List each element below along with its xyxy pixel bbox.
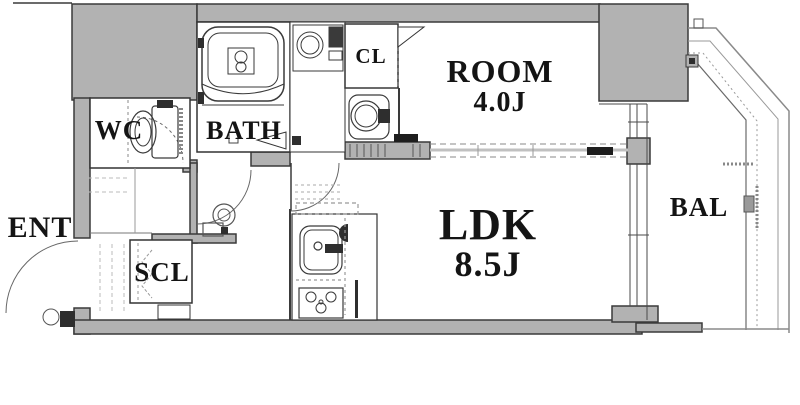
- sliding-door-handle-left: [394, 134, 418, 142]
- balcony-railing: [686, 19, 789, 333]
- sliding-door-handle-right: [587, 147, 613, 155]
- ldk-floor-dashes: [295, 185, 340, 199]
- wall-corridor-west: [190, 163, 197, 243]
- entrance-tile-marks: [100, 244, 124, 314]
- label-entrance: ENT: [2, 213, 78, 243]
- washer-tap-icon: [292, 136, 301, 145]
- entrance-door-arc: [6, 241, 78, 313]
- label-room: ROOM: [415, 55, 585, 87]
- ldk-door-arc: [291, 163, 339, 211]
- kitchen-faucet-icon: [325, 244, 343, 253]
- balcony-windows: [599, 104, 649, 320]
- label-closet: CL: [347, 46, 395, 67]
- washbasin-round-icon: [349, 95, 390, 139]
- wall-top-strip: [197, 4, 600, 22]
- entrance-door-knob: [43, 309, 59, 325]
- room-door-triangle: [398, 27, 424, 47]
- entry-step-box: [158, 305, 190, 319]
- label-balcony: BAL: [668, 194, 730, 221]
- floor-plan: ENT WC BATH CL ROOM 4.0J LDK 8.5J SCL BA…: [0, 0, 800, 405]
- balcony-partition-icon: [744, 196, 754, 212]
- label-room-size: 4.0J: [415, 89, 585, 117]
- wall-block-top-left: [72, 4, 197, 100]
- kitchen-counter: [292, 214, 377, 320]
- balcony-corner-marker: [694, 19, 703, 28]
- wall-hall-ldk: [251, 152, 290, 166]
- label-ldk-size: 8.5J: [402, 246, 574, 282]
- wall-sliding-pocket: [345, 142, 430, 159]
- corner-pillar: [60, 311, 75, 327]
- label-bath: BATH: [199, 118, 289, 144]
- wall-bottom: [74, 320, 642, 334]
- wall-window-bottom: [612, 306, 658, 322]
- wall-bottom-extension: [636, 323, 702, 332]
- label-wc: WC: [90, 117, 148, 144]
- label-scl: SCL: [133, 259, 191, 286]
- hall-door-arc: [197, 170, 251, 224]
- label-ldk: LDK: [402, 203, 574, 247]
- wall-block-top-right: [599, 4, 688, 101]
